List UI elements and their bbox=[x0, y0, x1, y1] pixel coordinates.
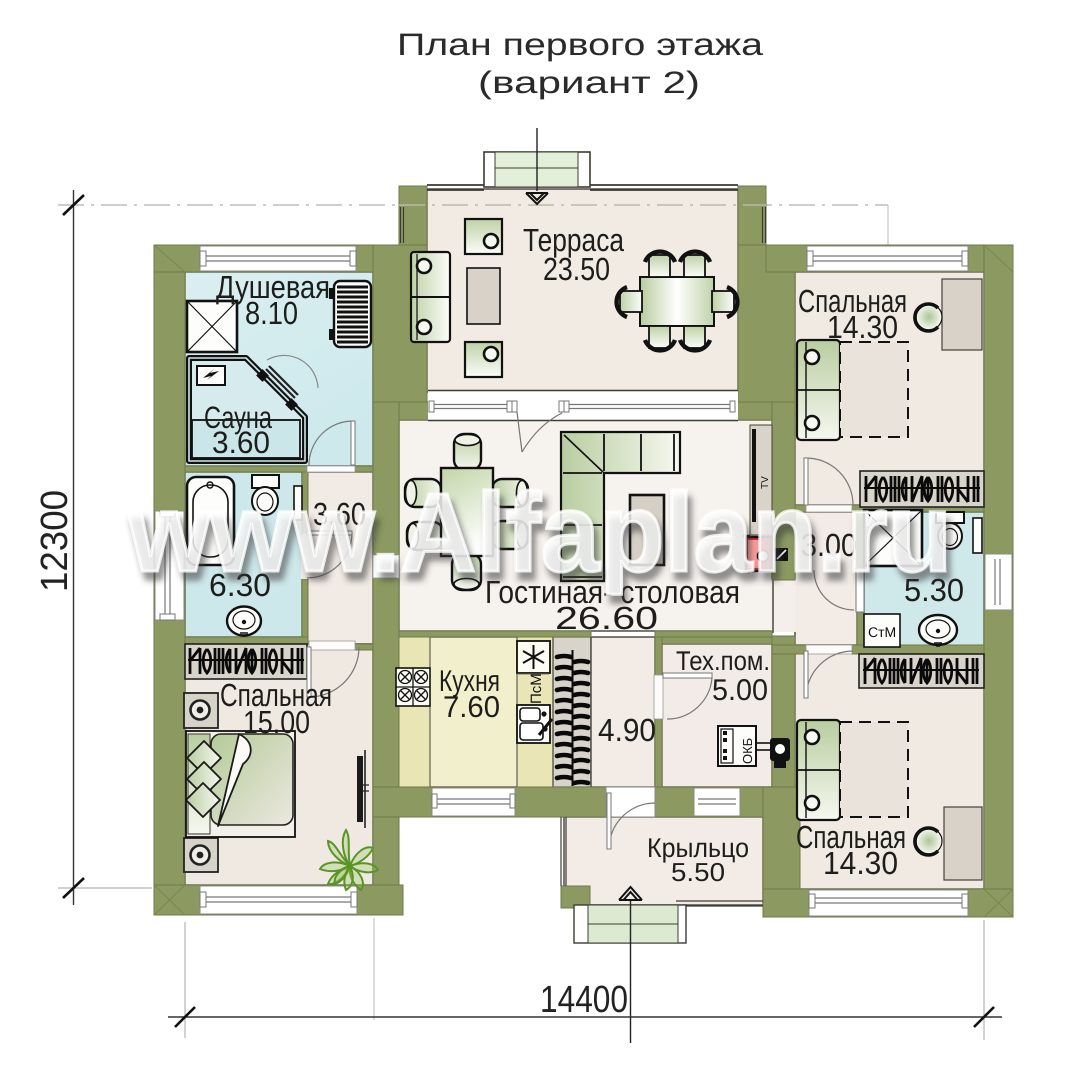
svg-text:www.Alfaplan.ru: www.Alfaplan.ru bbox=[127, 470, 952, 595]
svg-text:Тех.пом.: Тех.пом. bbox=[676, 646, 770, 676]
svg-text:СтМ: СтМ bbox=[868, 624, 896, 640]
svg-text:(вариант 2): (вариант 2) bbox=[478, 65, 700, 100]
svg-text:5.50: 5.50 bbox=[671, 857, 725, 887]
svg-text:4.90: 4.90 bbox=[598, 712, 656, 748]
svg-text:ОКБ: ОКБ bbox=[740, 738, 755, 764]
svg-text:12300: 12300 bbox=[34, 490, 76, 592]
svg-text:26.60: 26.60 bbox=[555, 600, 658, 636]
svg-text:23.50: 23.50 bbox=[543, 251, 610, 287]
svg-text:ПсМ: ПсМ bbox=[528, 673, 545, 704]
svg-text:8.10: 8.10 bbox=[245, 295, 298, 331]
svg-text:14400: 14400 bbox=[540, 979, 628, 1021]
svg-text:3.60: 3.60 bbox=[212, 425, 270, 460]
svg-text:7.60: 7.60 bbox=[443, 691, 500, 724]
svg-text:5.00: 5.00 bbox=[712, 674, 768, 707]
svg-text:14.30: 14.30 bbox=[827, 309, 898, 345]
svg-text:14.30: 14.30 bbox=[823, 845, 898, 881]
svg-text:15.00: 15.00 bbox=[243, 704, 310, 740]
svg-text:План первого этажа: План первого этажа bbox=[397, 27, 764, 62]
